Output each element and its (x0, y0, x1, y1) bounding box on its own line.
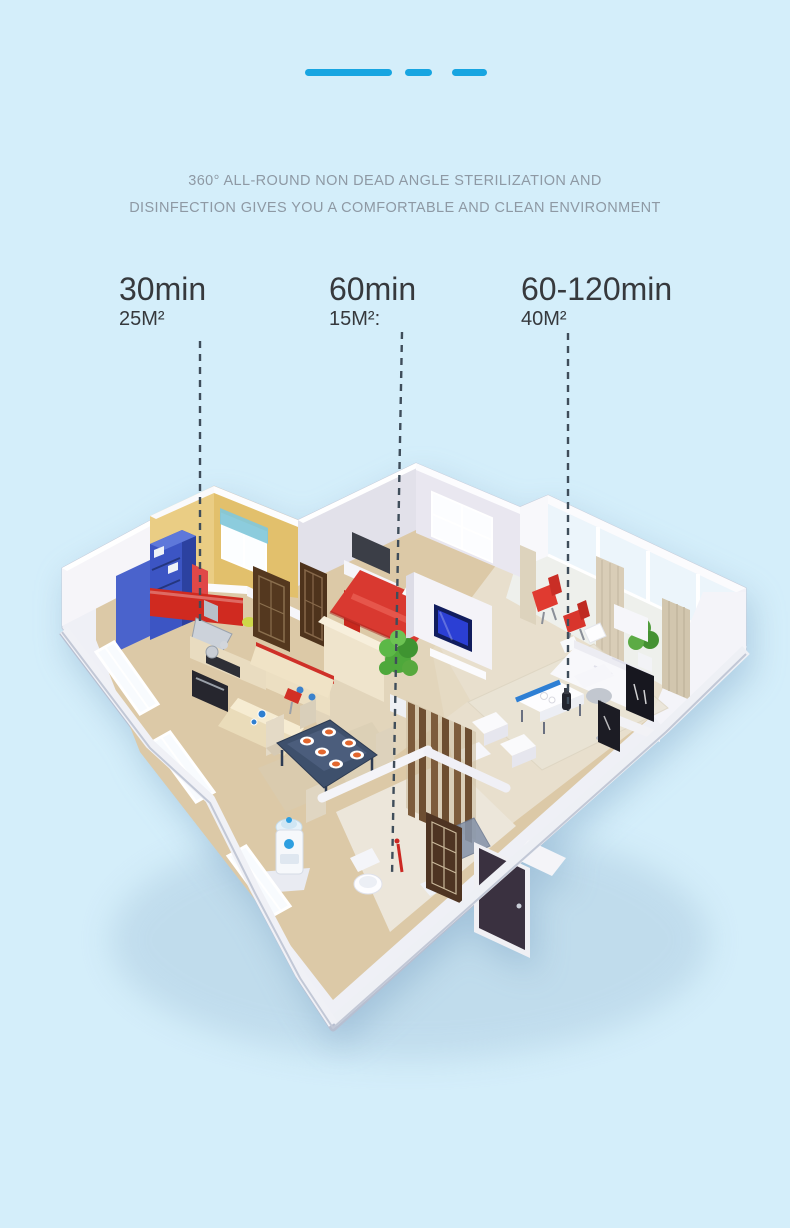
page: 360° ALL-ROUND NON DEAD ANGLE STERILIZAT… (0, 0, 790, 1228)
floor-plan-illustration (0, 0, 790, 1228)
curtain (662, 598, 690, 700)
curtain (520, 545, 536, 625)
sterilizer-device (562, 692, 571, 710)
